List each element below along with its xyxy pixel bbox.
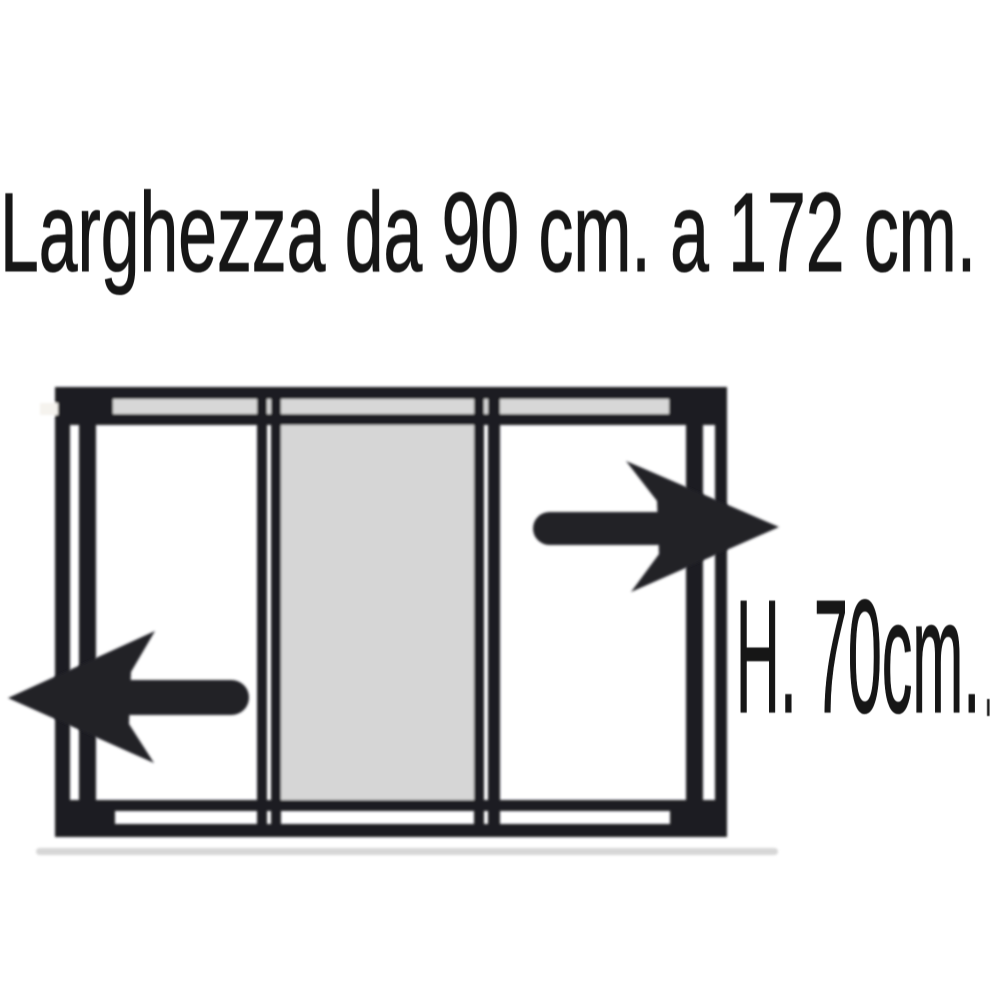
svg-text:H. 70cm.: H. 70cm. (736, 567, 980, 747)
svg-text:Larghezza da 90 cm. a 172 cm.: Larghezza da 90 cm. a 172 cm. (0, 170, 976, 295)
